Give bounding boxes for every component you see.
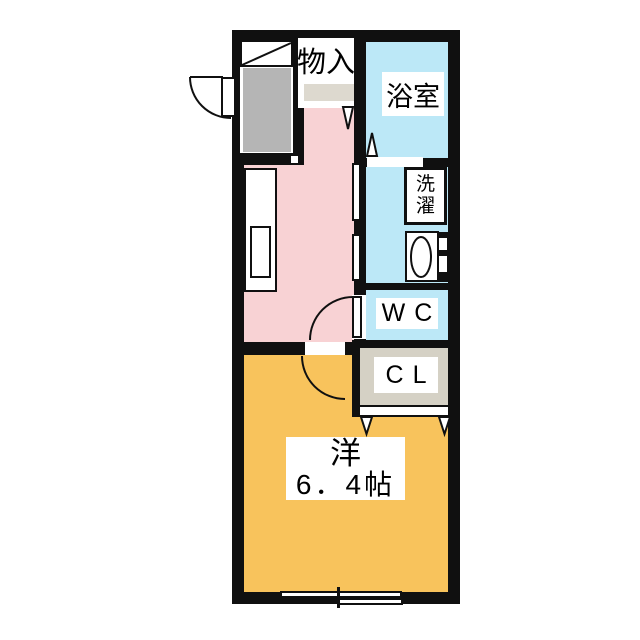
closet-label-box: CL: [374, 357, 438, 393]
kitchen-sink: [250, 226, 271, 278]
washing-machine-label-char-1: 洗: [416, 174, 435, 196]
room-name: 洋: [330, 438, 361, 471]
toilet-body: [405, 231, 439, 282]
closet-label: CL: [377, 361, 436, 390]
room-door-opening: [305, 342, 345, 355]
wc-label: WC: [373, 299, 442, 328]
washroom-slide-door-upper: [352, 163, 361, 221]
window-center-tick: [337, 587, 340, 608]
wall-notch: [291, 156, 298, 163]
room-size: 6．4帖: [296, 470, 395, 499]
kitchen-floor-upper: [304, 108, 354, 167]
toilet-tank-button-1: [439, 238, 447, 250]
shoe-cabinet: [240, 40, 293, 67]
storage-shelf: [304, 84, 354, 101]
bath-door-opening: [367, 157, 423, 167]
storage-label: 物入: [297, 39, 355, 81]
bath-label: 浴室: [386, 75, 440, 114]
entry-floor: [243, 68, 291, 152]
washing-machine-label-char-2: 濯: [416, 196, 435, 218]
washroom-slide-door-lower: [352, 234, 361, 281]
window-pane-long: [280, 591, 402, 598]
wc-door-leaf: [352, 296, 362, 338]
bath-label-box: 浴室: [382, 72, 444, 116]
washing-machine-box: 洗 濯: [404, 167, 447, 225]
storage-label-box: 物入: [298, 38, 354, 82]
wc-label-box: WC: [376, 298, 438, 329]
toilet-tank: [438, 232, 448, 282]
floor-plan-canvas: 物入 浴室 洗 濯 WC CL 洋 6．4帖: [0, 0, 640, 640]
window-pane-short: [338, 598, 403, 605]
room-label-box: 洋 6．4帖: [286, 437, 405, 500]
entry-door-plate: [221, 77, 236, 117]
closet-door-strip: [360, 405, 448, 417]
toilet-tank-button-2: [439, 256, 447, 272]
